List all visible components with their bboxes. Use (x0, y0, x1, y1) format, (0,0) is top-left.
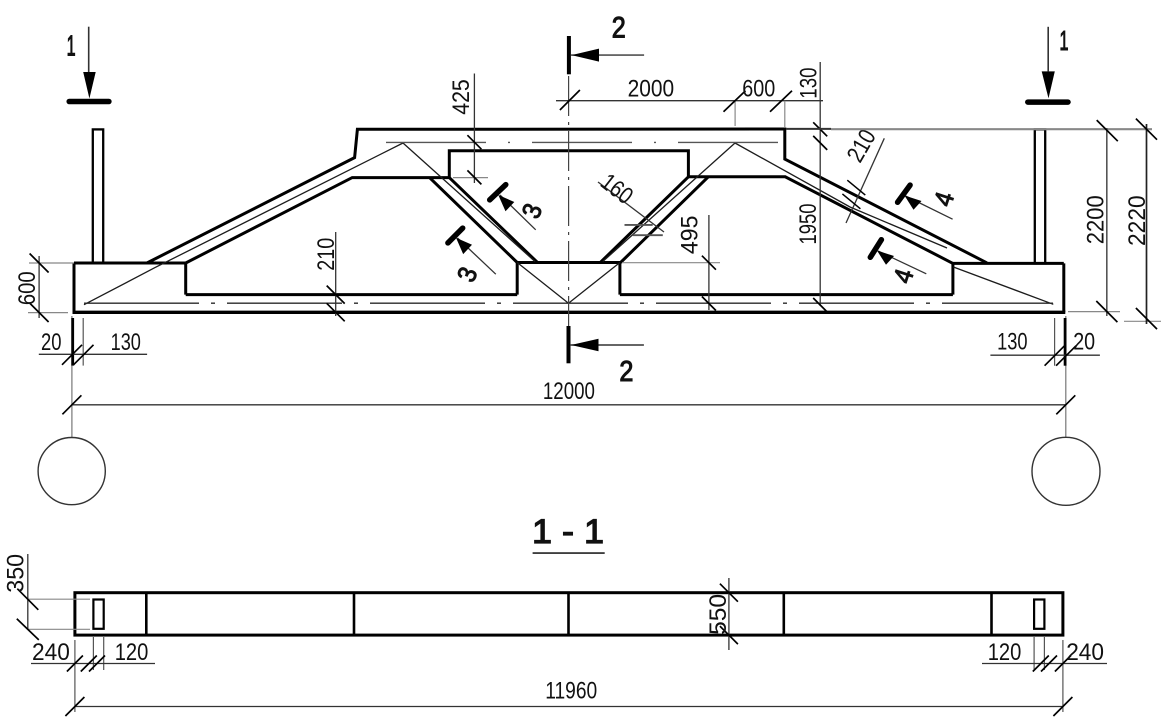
svg-text:120: 120 (115, 639, 149, 666)
svg-text:600: 600 (742, 76, 775, 103)
svg-text:350: 350 (2, 554, 29, 593)
svg-text:130: 130 (111, 329, 141, 356)
svg-text:495: 495 (677, 216, 704, 255)
svg-text:1: 1 (67, 30, 76, 62)
svg-text:2000: 2000 (628, 76, 675, 103)
svg-text:20: 20 (41, 329, 62, 356)
svg-text:1: 1 (1060, 25, 1069, 56)
svg-text:130: 130 (796, 68, 823, 99)
svg-text:2: 2 (612, 12, 626, 45)
svg-text:120: 120 (988, 639, 1022, 666)
svg-text:550: 550 (705, 594, 732, 635)
svg-text:1950: 1950 (795, 204, 822, 245)
svg-text:600: 600 (14, 271, 41, 305)
svg-text:11960: 11960 (545, 678, 597, 705)
svg-text:240: 240 (1066, 639, 1104, 666)
svg-text:12000: 12000 (543, 378, 595, 405)
svg-text:2: 2 (619, 356, 633, 388)
svg-text:2200: 2200 (1082, 195, 1109, 244)
svg-text:240: 240 (32, 639, 70, 666)
svg-text:20: 20 (1073, 329, 1095, 356)
svg-text:1 - 1: 1 - 1 (532, 513, 604, 551)
svg-text:2220: 2220 (1124, 195, 1151, 246)
svg-text:425: 425 (448, 79, 475, 115)
svg-text:210: 210 (313, 238, 340, 271)
svg-text:130: 130 (997, 329, 1027, 356)
